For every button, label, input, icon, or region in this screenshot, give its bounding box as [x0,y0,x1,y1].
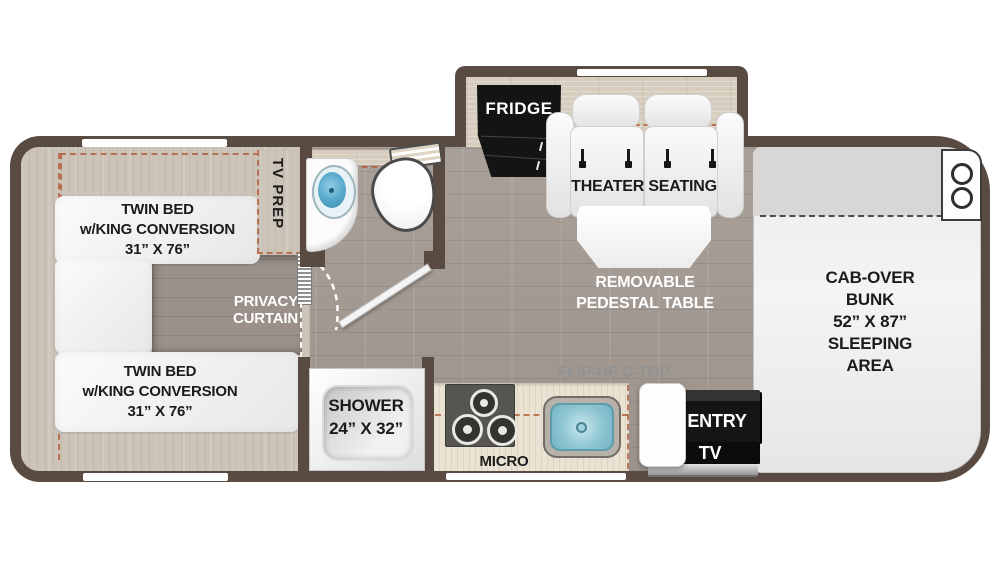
shower-label-line: 24” X 32” [314,417,418,440]
sofa-armrest [716,112,744,218]
cab-console-panel [941,149,982,221]
privacy-curtain-line: PRIVACY [200,293,298,310]
seatbelt-icon [666,149,669,162]
sofa-seat [644,126,718,218]
sink-drain-icon [329,188,334,193]
table-label-line: PEDESTAL TABLE [562,293,728,314]
burner-icon [470,389,498,417]
entry-label: ENTRY [674,410,760,432]
seatbelt-icon [627,149,630,162]
bed-label-line: TWIN BED [55,200,260,220]
bed-label-line: 31” X 76” [50,402,270,422]
shower-label: SHOWER 24” X 32” [314,394,418,440]
bed-label-line: 31” X 76” [55,240,260,260]
table-label-line: REMOVABLE [562,272,728,293]
bed-bottom-label: TWIN BED w/KING CONVERSION 31” X 76” [50,362,270,422]
pedestal-table [577,206,711,268]
seatbelt-icon [581,149,584,162]
bunk-label-line: 52” X 87” [795,311,945,333]
fridge-handle-icon [536,161,540,170]
window [446,473,626,480]
fridge-door-line [485,155,551,161]
sink-drain-icon [576,422,587,433]
cab-over-bunk-label: CAB-OVER BUNK 52” X 87” SLEEPING AREA [795,267,945,377]
bed-label-line: w/KING CONVERSION [50,382,270,402]
bed-corner-cushion [55,258,152,355]
privacy-curtain-line: CURTAIN [200,310,298,327]
sofa-seat [570,126,644,218]
pedestal-table-label: REMOVABLE PEDESTAL TABLE [562,272,728,314]
flip-up-countertop [639,383,686,467]
tv-prep-label: TV PREP [269,158,286,229]
window [577,69,707,76]
bed-top-label: TWIN BED w/KING CONVERSION 31” X 76” [55,200,260,260]
bed-label-line: w/KING CONVERSION [55,220,260,240]
burner-icon [487,415,518,446]
theater-seating-label: THEATER SEATING [556,178,732,196]
bunk-label-line: BUNK [795,289,945,311]
bunk-label-line: SLEEPING [795,333,945,355]
fridge-handle-icon [539,142,543,151]
counter-dashed-line [627,385,629,469]
burner-icon [452,414,483,445]
bunk-label-line: AREA [795,355,945,377]
window [82,139,227,147]
sofa-back-pillow [644,94,712,130]
sofa-back-pillow [572,94,640,130]
privacy-curtain-label: PRIVACY CURTAIN [200,293,298,327]
cup-holder-icon [951,163,973,185]
tv-prep-cabinet: TV PREP [257,150,302,254]
seatbelt-icon [711,149,714,162]
floor-plan-canvas: CAB-OVER BUNK 52” X 87” SLEEPING AREA TW… [0,0,1000,562]
cup-holder-icon [951,187,973,209]
bunk-label-line: CAB-OVER [795,267,945,289]
shower-label-line: SHOWER [314,394,418,417]
flip-up-ctop-label: FLIP-UP C-TOP [558,364,703,382]
micro-label: MICRO [466,452,542,472]
bed-label-line: TWIN BED [50,362,270,382]
window [83,473,228,481]
